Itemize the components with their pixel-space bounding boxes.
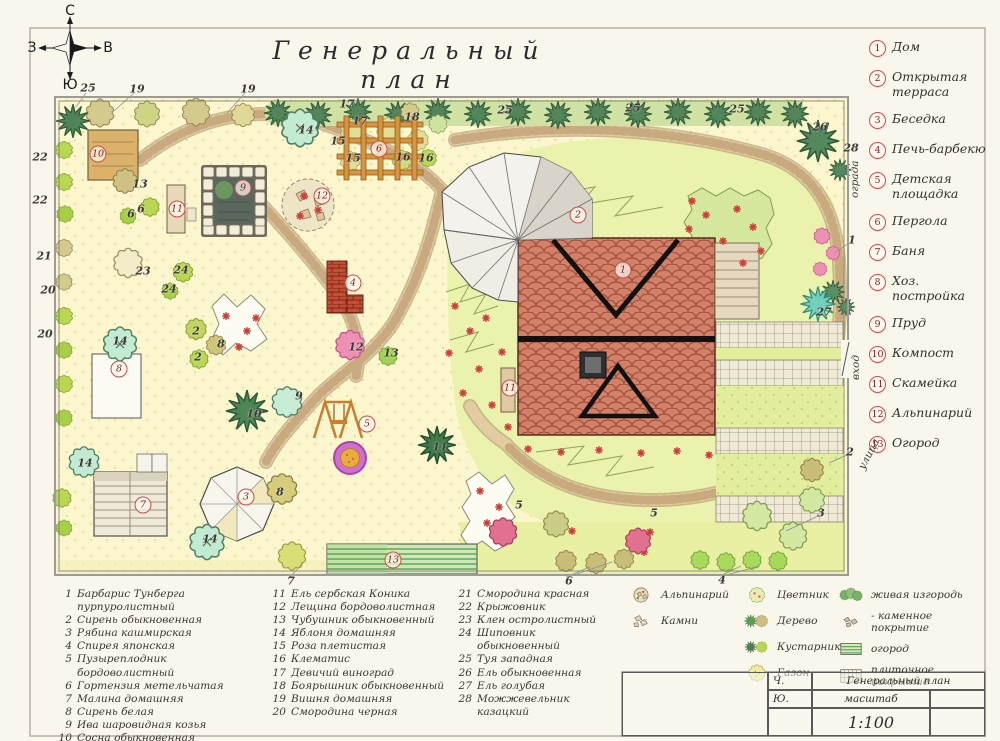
symbol-legend-item: огород: [836, 638, 988, 660]
plant-list-item: 6Гортензия метельчатая: [56, 680, 266, 693]
facility-marker: 10: [90, 146, 107, 163]
plant-list-item: 19Вишня домашняя: [270, 693, 460, 706]
symbol-label: огород: [871, 643, 909, 655]
title-block-cell-3: [768, 708, 812, 736]
plant-marker: 17: [339, 98, 354, 111]
plant-marker: 19: [129, 83, 144, 96]
title-block-cell-2: Ю.: [768, 690, 812, 708]
plant-list-item: 3Рябина кашмирская: [56, 627, 266, 640]
plant-number: 8: [56, 706, 72, 719]
plant-label: Барбарис Тунберга пурпуролистный: [77, 588, 266, 614]
plant-marker: 18: [404, 111, 419, 124]
facility-marker: 11: [169, 201, 186, 218]
symbols-col-1: АльпинарийКамни: [626, 584, 738, 636]
title-block-doc-title: Генеральный план: [812, 672, 985, 690]
plant-label: Можжевельник казацкий: [477, 693, 570, 719]
facility-marker: 5: [359, 416, 376, 433]
plant-number: 11: [270, 588, 286, 601]
plant-list-item: 17Девичий виноград: [270, 667, 460, 680]
tree-icon: [742, 610, 772, 632]
plant-number: 22: [456, 601, 472, 614]
plant-list-item: 26Ель обыкновенная: [456, 667, 614, 680]
symbol-legend-item: - каменное покрытие: [836, 610, 988, 634]
plants-col-3: 21Смородина красная22Крыжовник23Клен ост…: [456, 588, 614, 719]
plant-list-item: 5Пузыреплодник бордоволистный: [56, 653, 266, 679]
plant-marker: 25: [497, 104, 512, 117]
plant-list-item: 23Клен остролистный: [456, 614, 614, 627]
facility-marker: 6: [371, 141, 388, 158]
plant-list-item: 22Крыжовник: [456, 601, 614, 614]
plant-marker: 6: [127, 208, 135, 221]
symbol-label: живая изгородь: [871, 589, 963, 601]
facility-marker: 8: [111, 361, 128, 378]
plant-number: 12: [270, 601, 286, 614]
plant-marker: 8: [217, 338, 225, 351]
plant-label: Роза плетистая: [291, 640, 386, 653]
plant-marker: 14: [112, 335, 127, 348]
plant-marker: 14: [77, 457, 92, 470]
plant-marker: 20: [40, 284, 55, 297]
plant-label: Яблоня домашняя: [291, 627, 396, 640]
plant-list-item: 7Малина домашняя: [56, 693, 266, 706]
plant-marker: 27: [816, 306, 831, 319]
flowerbed-icon: [742, 584, 772, 606]
facility-marker: 9: [235, 180, 252, 197]
facility-marker: 4: [345, 275, 362, 292]
plant-marker: 16: [395, 151, 410, 164]
plant-marker: 28: [843, 142, 858, 155]
plant-number: 21: [456, 588, 472, 601]
plant-number: 19: [270, 693, 286, 706]
plant-marker: 11: [432, 441, 447, 454]
plant-list-item: 16Клематис: [270, 653, 460, 666]
plant-label: Чубушник обыкновенный: [291, 614, 434, 627]
plant-marker: 25: [729, 103, 744, 116]
plant-number: 1: [56, 588, 72, 614]
symbol-label: - каменное покрытие: [871, 610, 988, 634]
title-block-left-cell: [622, 672, 768, 736]
plant-label: Боярышник обыкновенный: [291, 680, 444, 693]
plant-number: 25: [456, 653, 472, 666]
stone-paving-icon: [836, 611, 866, 633]
plant-marker: 1: [848, 234, 856, 247]
plant-number: 13: [270, 614, 286, 627]
plant-label: Гортензия метельчатая: [77, 680, 224, 693]
symbol-label: Цветник: [777, 589, 829, 601]
alpinary-icon: [626, 584, 656, 606]
plant-marker: 7: [287, 575, 295, 588]
plant-marker: 19: [240, 83, 255, 96]
title-block-cell-1: Ч.: [768, 672, 812, 690]
symbol-legend-item: Дерево: [742, 610, 842, 632]
plant-number: 23: [456, 614, 472, 627]
symbol-label: Дерево: [777, 615, 817, 627]
plant-label: Рябина кашмирская: [77, 627, 192, 640]
plant-label: Сирень белая: [77, 706, 154, 719]
plant-marker: 22: [32, 194, 47, 207]
plant-label: Ель голубая: [477, 680, 545, 693]
plant-marker: 2: [192, 325, 200, 338]
plant-list-item: 4Спирея японская: [56, 640, 266, 653]
facility-marker: 13: [385, 552, 402, 569]
plant-number: 9: [56, 719, 72, 732]
plant-number: 17: [270, 667, 286, 680]
plant-label: Ива шаровидная козья: [77, 719, 206, 732]
plant-label: Ель обыкновенная: [477, 667, 582, 680]
plant-marker: 25: [80, 82, 95, 95]
plant-list-item: 10Сосна обыкновенная: [56, 732, 266, 741]
plant-marker: 14: [202, 533, 217, 546]
facility-marker: 7: [135, 497, 152, 514]
symbol-label: Альпинарий: [661, 589, 729, 601]
plant-marker: 10: [246, 408, 261, 421]
symbol-legend-item: Цветник: [742, 584, 842, 606]
plant-label: Сирень обыкновенная: [77, 614, 202, 627]
plant-label: Ель сербская Коника: [291, 588, 410, 601]
plant-label: Девичий виноград: [291, 667, 394, 680]
facility-marker: 3: [238, 489, 255, 506]
plant-marker: 14: [298, 124, 313, 137]
plant-list-item: 28Можжевельник казацкий: [456, 693, 614, 719]
hedge-icon: [836, 584, 866, 606]
plant-marker: 22: [32, 151, 47, 164]
plant-number: 28: [456, 693, 472, 719]
plant-marker: 15: [345, 152, 360, 165]
symbol-label: Кустарник: [777, 641, 841, 653]
plant-list-item: 9Ива шаровидная козья: [56, 719, 266, 732]
plant-list-item: 1Барбарис Тунберга пурпуролистный: [56, 588, 266, 614]
plant-list-item: 21Смородина красная: [456, 588, 614, 601]
plant-marker: 25: [625, 102, 640, 115]
plant-marker: 2: [846, 446, 854, 459]
plant-number: 26: [456, 667, 472, 680]
plant-list-item: 12Лещина бордоволистная: [270, 601, 460, 614]
plant-label: Клематис: [291, 653, 350, 666]
title-block-scale-value: 1:100: [812, 708, 930, 736]
plant-number: 3: [56, 627, 72, 640]
plant-number: 2: [56, 614, 72, 627]
plant-marker: 23: [135, 265, 150, 278]
plant-marker: 15: [330, 135, 345, 148]
facility-marker: 11: [502, 380, 519, 397]
symbol-label: Камни: [661, 615, 698, 627]
plant-marker: 3: [817, 507, 825, 520]
plant-number: 5: [56, 653, 72, 679]
plant-number: 15: [270, 640, 286, 653]
plant-label: Смородина черная: [291, 706, 398, 719]
plant-marker: 24: [161, 283, 176, 296]
facility-marker: 1: [615, 262, 632, 279]
plant-number: 6: [56, 680, 72, 693]
plant-list-item: 25Туя западная: [456, 653, 614, 666]
plant-marker: 6: [565, 575, 573, 588]
plant-number: 20: [270, 706, 286, 719]
plant-number: 24: [456, 627, 472, 653]
plant-marker: 8: [276, 486, 284, 499]
plant-marker: 12: [348, 341, 363, 354]
plant-label: Крыжовник: [477, 601, 545, 614]
plant-label: Спирея японская: [77, 640, 175, 653]
plant-marker: 24: [173, 264, 188, 277]
plant-list-item: 18Боярышник обыкновенный: [270, 680, 460, 693]
plant-marker: 16: [418, 152, 433, 165]
plant-list-item: 24Шиповник обыкновенный: [456, 627, 614, 653]
plant-list-item: 8Сирень белая: [56, 706, 266, 719]
plant-marker: 9: [295, 390, 303, 403]
symbol-legend-item: Кустарник: [742, 636, 842, 658]
plant-list-item: 14Яблоня домашняя: [270, 627, 460, 640]
facility-marker: 2: [570, 207, 587, 224]
title-block-scale-label: масштаб: [812, 690, 930, 708]
plant-list-item: 11Ель сербская Коника: [270, 588, 460, 601]
plant-marker: 5: [650, 507, 658, 520]
plant-marker: 6: [137, 203, 145, 216]
plant-label: Клен остролистный: [477, 614, 596, 627]
plant-list-item: 27Ель голубая: [456, 680, 614, 693]
drawing-sheet: Генеральный план С Ю З В 1Дом2Открытая т…: [0, 0, 1000, 741]
symbol-legend-item: Камни: [626, 610, 738, 632]
plant-label: Вишня домашняя: [291, 693, 392, 706]
plants-col-1: 1Барбарис Тунберга пурпуролистный2Сирень…: [56, 588, 266, 741]
plant-marker: 21: [36, 250, 51, 263]
plant-number: 16: [270, 653, 286, 666]
plant-label: Лещина бордоволистная: [291, 601, 435, 614]
plant-number: 10: [56, 732, 72, 741]
plant-marker: 17: [352, 115, 367, 128]
plant-list-item: 20Смородина черная: [270, 706, 460, 719]
plant-number: 7: [56, 693, 72, 706]
plant-label: Сосна обыкновенная: [77, 732, 195, 741]
shrub-icon: [742, 636, 772, 658]
plant-list-item: 15Роза плетистая: [270, 640, 460, 653]
plant-number: 18: [270, 680, 286, 693]
plant-number: 14: [270, 627, 286, 640]
garden-bed-icon: [836, 638, 866, 660]
plant-label: Смородина красная: [477, 588, 589, 601]
plant-list-item: 2Сирень обыкновенная: [56, 614, 266, 627]
title-block-empty-cell: [930, 690, 985, 708]
title-block-empty-cell: [930, 708, 985, 736]
plant-number: 4: [56, 640, 72, 653]
plant-marker: 13: [132, 178, 147, 191]
plants-col-2: 11Ель сербская Коника12Лещина бордоволис…: [270, 588, 460, 719]
plant-marker: 5: [515, 499, 523, 512]
plant-number: 27: [456, 680, 472, 693]
plant-marker: 26: [812, 121, 827, 134]
plant-label: Туя западная: [477, 653, 553, 666]
plant-marker: 2: [194, 351, 202, 364]
plant-marker: 20: [37, 328, 52, 341]
facility-marker: 12: [314, 188, 331, 205]
symbol-legend-item: живая изгородь: [836, 584, 988, 606]
plant-marker: 13: [383, 347, 398, 360]
plant-label: Пузыреплодник бордоволистный: [77, 653, 266, 679]
symbol-legend-item: Альпинарий: [626, 584, 738, 606]
plant-list-item: 13Чубушник обыкновенный: [270, 614, 460, 627]
plant-label: Шиповник обыкновенный: [477, 627, 614, 653]
plant-label: Малина домашняя: [77, 693, 184, 706]
stones-icon: [626, 610, 656, 632]
